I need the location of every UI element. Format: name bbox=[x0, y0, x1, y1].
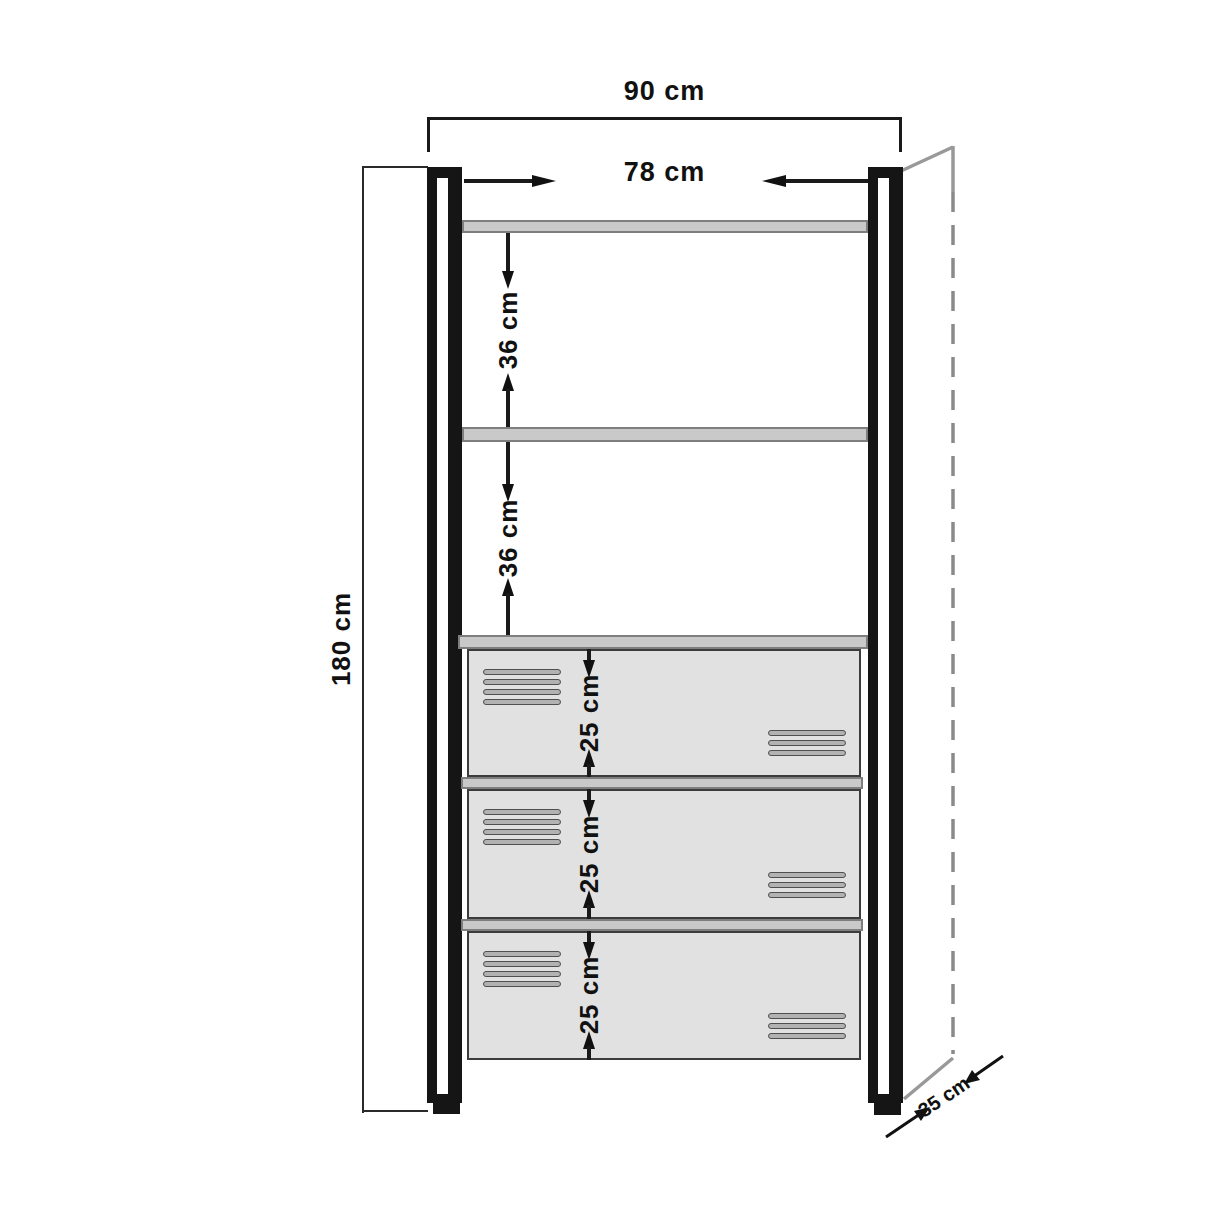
vent-top-left-1 bbox=[483, 669, 561, 709]
vent-slat bbox=[768, 1023, 846, 1029]
vent-bottom-right-3 bbox=[768, 1013, 846, 1043]
dim-label-depth: 35 cm bbox=[914, 1072, 974, 1123]
dim-label-inner-width: 78 cm bbox=[427, 157, 902, 188]
post-highlight-left bbox=[437, 178, 448, 1094]
dim-seg-gap1-bottom bbox=[506, 389, 510, 427]
dim-label-shelf-gap-1: 36 cm bbox=[493, 291, 524, 370]
dim-tick-height-top bbox=[362, 166, 428, 168]
shelf-top bbox=[462, 220, 868, 233]
dim-arrowhead-inner-left bbox=[532, 175, 556, 187]
dim-label-total-width: 90 cm bbox=[427, 76, 902, 107]
drawer-3 bbox=[467, 931, 861, 1060]
dim-seg-drawer1-bottom bbox=[587, 764, 591, 777]
vent-slat bbox=[768, 740, 846, 746]
perspective-top-edge bbox=[901, 147, 953, 171]
vent-slat bbox=[483, 809, 561, 815]
dim-arrow-inner-right bbox=[786, 179, 868, 183]
post-foot-right bbox=[874, 1103, 901, 1115]
drawer-separator-2 bbox=[461, 919, 863, 931]
dim-seg-drawer2-bottom bbox=[587, 905, 591, 919]
dim-seg-gap2-top bbox=[506, 442, 510, 486]
post-foot-left bbox=[433, 1103, 460, 1114]
drawer-1 bbox=[467, 649, 861, 777]
dim-label-drawer-3: 25 cm bbox=[574, 956, 605, 1035]
frame-post-right bbox=[868, 167, 903, 1103]
dim-seg-gap2-bottom bbox=[506, 593, 510, 635]
vent-slat bbox=[768, 730, 846, 736]
vent-slat bbox=[768, 750, 846, 756]
dim-label-drawer-1: 25 cm bbox=[574, 674, 605, 753]
dim-seg-gap1-top bbox=[506, 233, 510, 271]
vent-top-left-2 bbox=[483, 809, 561, 849]
vent-slat bbox=[483, 699, 561, 705]
dim-arrow-depth-right bbox=[970, 1056, 1003, 1079]
dim-arrowhead-gap1-top bbox=[502, 271, 514, 289]
vent-top-left-3 bbox=[483, 951, 561, 991]
shelf-middle bbox=[462, 427, 868, 442]
vent-slat bbox=[483, 689, 561, 695]
dim-arrowhead-inner-right bbox=[762, 175, 786, 187]
vent-slat bbox=[483, 829, 561, 835]
frame-post-left bbox=[427, 167, 462, 1103]
vent-slat bbox=[483, 669, 561, 675]
post-highlight-right bbox=[878, 178, 889, 1094]
cabinet-top-panel bbox=[458, 635, 868, 649]
vent-slat bbox=[768, 1013, 846, 1019]
vent-bottom-right-1 bbox=[768, 730, 846, 760]
drawer-2 bbox=[467, 789, 861, 919]
dim-arrow-depth-left bbox=[886, 1114, 920, 1137]
vent-slat bbox=[768, 872, 846, 878]
dim-line-total-width bbox=[427, 117, 902, 120]
dim-label-height: 180 cm bbox=[326, 592, 357, 686]
vent-slat bbox=[483, 981, 561, 987]
vent-slat bbox=[768, 882, 846, 888]
drawer-separator-1 bbox=[461, 777, 863, 789]
dim-ext-total-width-right bbox=[899, 117, 902, 152]
dim-label-shelf-gap-2: 36 cm bbox=[493, 499, 524, 578]
dim-label-drawer-2: 25 cm bbox=[574, 815, 605, 894]
vent-bottom-right-2 bbox=[768, 872, 846, 902]
dim-ext-total-width-left bbox=[427, 117, 430, 152]
vent-slat bbox=[768, 892, 846, 898]
vent-slat bbox=[483, 839, 561, 845]
dim-tick-height-bottom bbox=[362, 1110, 428, 1112]
vent-slat bbox=[483, 951, 561, 957]
vent-slat bbox=[483, 961, 561, 967]
vent-slat bbox=[768, 1033, 846, 1039]
dim-line-height bbox=[362, 167, 364, 1113]
vent-slat bbox=[483, 819, 561, 825]
furniture-dimension-diagram: 90 cm 78 cm 180 cm 35 cm bbox=[0, 0, 1214, 1214]
vent-slat bbox=[483, 679, 561, 685]
vent-slat bbox=[483, 971, 561, 977]
dim-seg-drawer3-bottom bbox=[587, 1046, 591, 1060]
